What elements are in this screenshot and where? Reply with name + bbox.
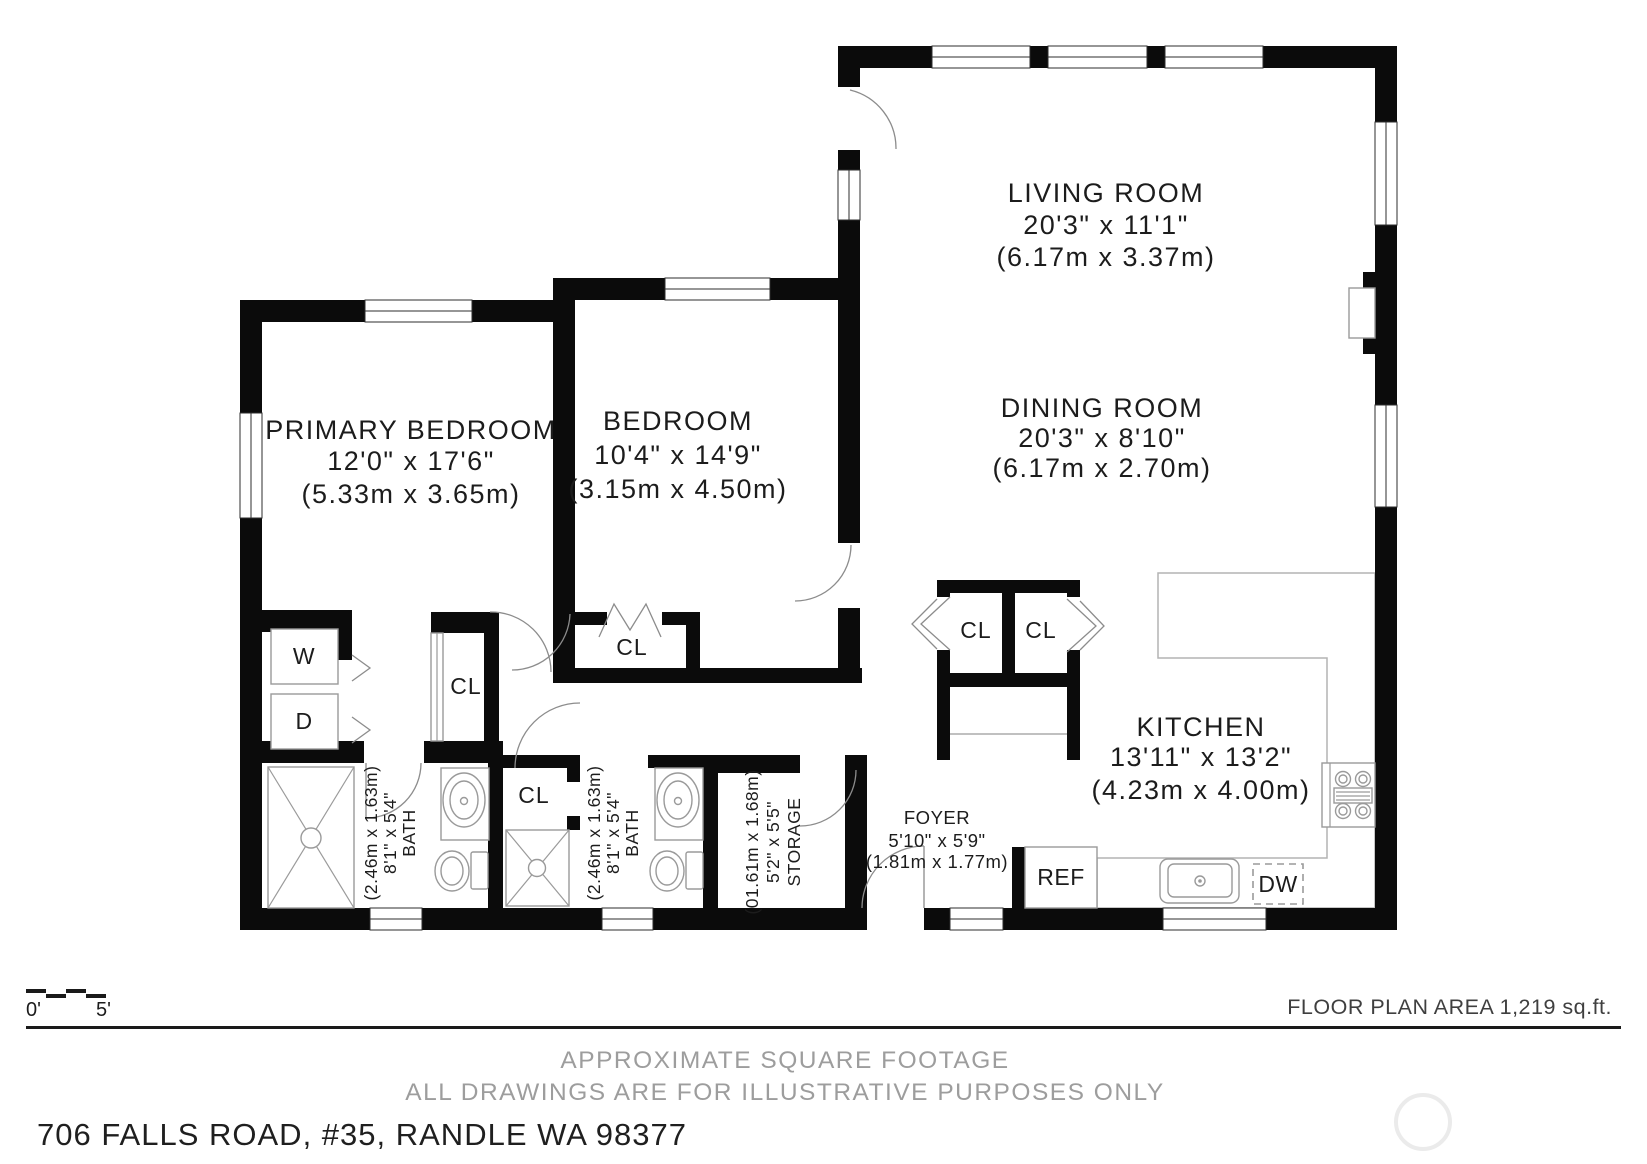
foyer-closet-left-bifold (921, 597, 950, 650)
sink-2 (655, 768, 703, 840)
dining-room-dims-ft: 20'3" x 8'10" (1018, 423, 1186, 453)
foyer-dims-m: (1.81m x 1.77m) (866, 851, 1008, 872)
foyer-closet-left-bifold-inner (912, 599, 937, 649)
foyer-closet-right-bifold-inner (1080, 601, 1104, 650)
foyer-closet-right-label: CL (1025, 617, 1056, 643)
dryer-door-chevron (352, 717, 370, 743)
property-address: 706 FALLS ROAD, #35, RANDLE WA 98377 (37, 1117, 687, 1152)
dryer-label: D (295, 708, 312, 734)
window (365, 300, 472, 322)
kitchen-dims-ft: 13'11" x 13'2" (1110, 742, 1292, 772)
room-label-living: LIVING ROOM 20'3" x 11'1" (6.17m x 3.37m… (996, 178, 1215, 272)
watermark-circle (1396, 1095, 1450, 1149)
primary-closet-sliding-door (431, 633, 443, 741)
room-label-kitchen: KITCHEN 13'11" x 13'2" (4.23m x 4.00m) (1091, 712, 1310, 805)
window (370, 908, 422, 930)
primary-bedroom-name: PRIMARY BEDROOM (265, 415, 557, 445)
floor-plan-page: LIVING ROOM 20'3" x 11'1" (6.17m x 3.37m… (0, 0, 1647, 1164)
shower-drain-icon (301, 828, 321, 848)
bedroom-dims-m: (3.15m x 4.50m) (568, 474, 787, 504)
toilet-2 (650, 851, 703, 891)
refrigerator-label: REF (1037, 864, 1085, 890)
disclaimer-line-1: APPROXIMATE SQUARE FOOTAGE (560, 1047, 1009, 1074)
sink-1 (441, 768, 489, 840)
window (1048, 46, 1147, 68)
stove-icon (1322, 763, 1375, 827)
room-label-storage: STORAGE 5'2" x 5'5" (01.61m x 1.68m) (742, 769, 804, 914)
window (665, 278, 770, 300)
window (240, 413, 262, 518)
dining-room-dims-m: (6.17m x 2.70m) (992, 453, 1211, 483)
disclaimer-line-2: ALL DRAWINGS ARE FOR ILLUSTRATIVE PURPOS… (405, 1079, 1164, 1106)
niche-stub-top (1363, 272, 1375, 288)
storage-dims-ft: 5'2" x 5'5" (763, 801, 783, 883)
scale-bar: 0' 5' (26, 989, 111, 1021)
living-entry-door-arc (850, 90, 896, 149)
kitchen-sink (1160, 859, 1239, 903)
bedroom-closet-bifold (599, 604, 661, 637)
window (950, 908, 1003, 930)
primary-bedroom-dims-ft: 12'0" x 17'6" (327, 446, 495, 476)
hall-closet-label: CL (518, 782, 549, 808)
washer-door-chevron (352, 655, 370, 681)
scale-end-label: 5' (96, 999, 111, 1021)
kitchen-dims-m: (4.23m x 4.00m) (1091, 775, 1310, 805)
dishwasher-label: DW (1258, 871, 1297, 897)
floor-plan-area-note: FLOOR PLAN AREA 1,219 sq.ft. (1287, 995, 1612, 1019)
living-room-name: LIVING ROOM (1008, 178, 1205, 208)
toilet-1 (435, 851, 488, 891)
bedroom-name: BEDROOM (603, 406, 753, 436)
bath2-name: BATH (622, 809, 642, 856)
kitchen-name: KITCHEN (1136, 712, 1265, 742)
room-label-bath-2: BATH 8'1" x 5'4" (2.46m x 1.63m) (584, 766, 642, 901)
bath1-name: BATH (399, 809, 419, 856)
divider-rule (26, 1026, 1621, 1029)
storage-dims-m: (01.61m x 1.68m) (742, 769, 762, 914)
shower-1 (268, 767, 354, 908)
bath1-dims-ft: 8'1" x 5'4" (380, 792, 400, 874)
primary-bedroom-door-arc (490, 612, 551, 672)
window (1375, 405, 1397, 507)
bath1-dims-m: (2.46m x 1.63m) (361, 766, 381, 901)
room-label-dining: DINING ROOM 20'3" x 8'10" (6.17m x 2.70m… (992, 393, 1211, 483)
room-label-bedroom: BEDROOM 10'4" x 14'9" (3.15m x 4.50m) (568, 406, 787, 504)
room-label-foyer: FOYER 5'10" x 5'9" (1.81m x 1.77m) (866, 807, 1008, 872)
primary-bedroom-dims-m: (5.33m x 3.65m) (301, 479, 520, 509)
floor-plan-canvas: LIVING ROOM 20'3" x 11'1" (6.17m x 3.37m… (0, 0, 1647, 1164)
living-room-dims-m: (6.17m x 3.37m) (996, 242, 1215, 272)
foyer-dims-ft: 5'10" x 5'9" (888, 830, 985, 851)
bedroom-closet-label: CL (616, 634, 647, 660)
room-label-bath-1: BATH 8'1" x 5'4" (2.46m x 1.63m) (361, 766, 419, 901)
room-label-primary-bedroom: PRIMARY BEDROOM 12'0" x 17'6" (5.33m x 3… (265, 415, 557, 509)
washer-label: W (293, 643, 315, 669)
dining-room-name: DINING ROOM (1001, 393, 1204, 423)
foyer-name: FOYER (904, 807, 970, 828)
dining-hall-door-arc (795, 545, 851, 601)
niche-box (1349, 288, 1375, 338)
bath2-dims-ft: 8'1" x 5'4" (603, 792, 623, 874)
shower-2 (506, 830, 569, 906)
window (602, 908, 653, 930)
bath2-dims-m: (2.46m x 1.63m) (584, 766, 604, 901)
shower-drain-icon (529, 860, 546, 877)
primary-closet-label: CL (450, 673, 481, 699)
storage-name: STORAGE (784, 798, 804, 887)
niche-stub-bottom (1363, 338, 1375, 354)
bedroom-dims-ft: 10'4" x 14'9" (594, 440, 762, 470)
foyer-closet-right-bifold (1067, 599, 1096, 652)
window (1165, 46, 1263, 68)
window (838, 170, 860, 220)
living-room-dims-ft: 20'3" x 11'1" (1023, 210, 1189, 240)
scale-start-label: 0' (26, 999, 41, 1021)
window (932, 46, 1030, 68)
window (1163, 908, 1266, 930)
window (1375, 122, 1397, 225)
foyer-closet-left-label: CL (960, 617, 991, 643)
